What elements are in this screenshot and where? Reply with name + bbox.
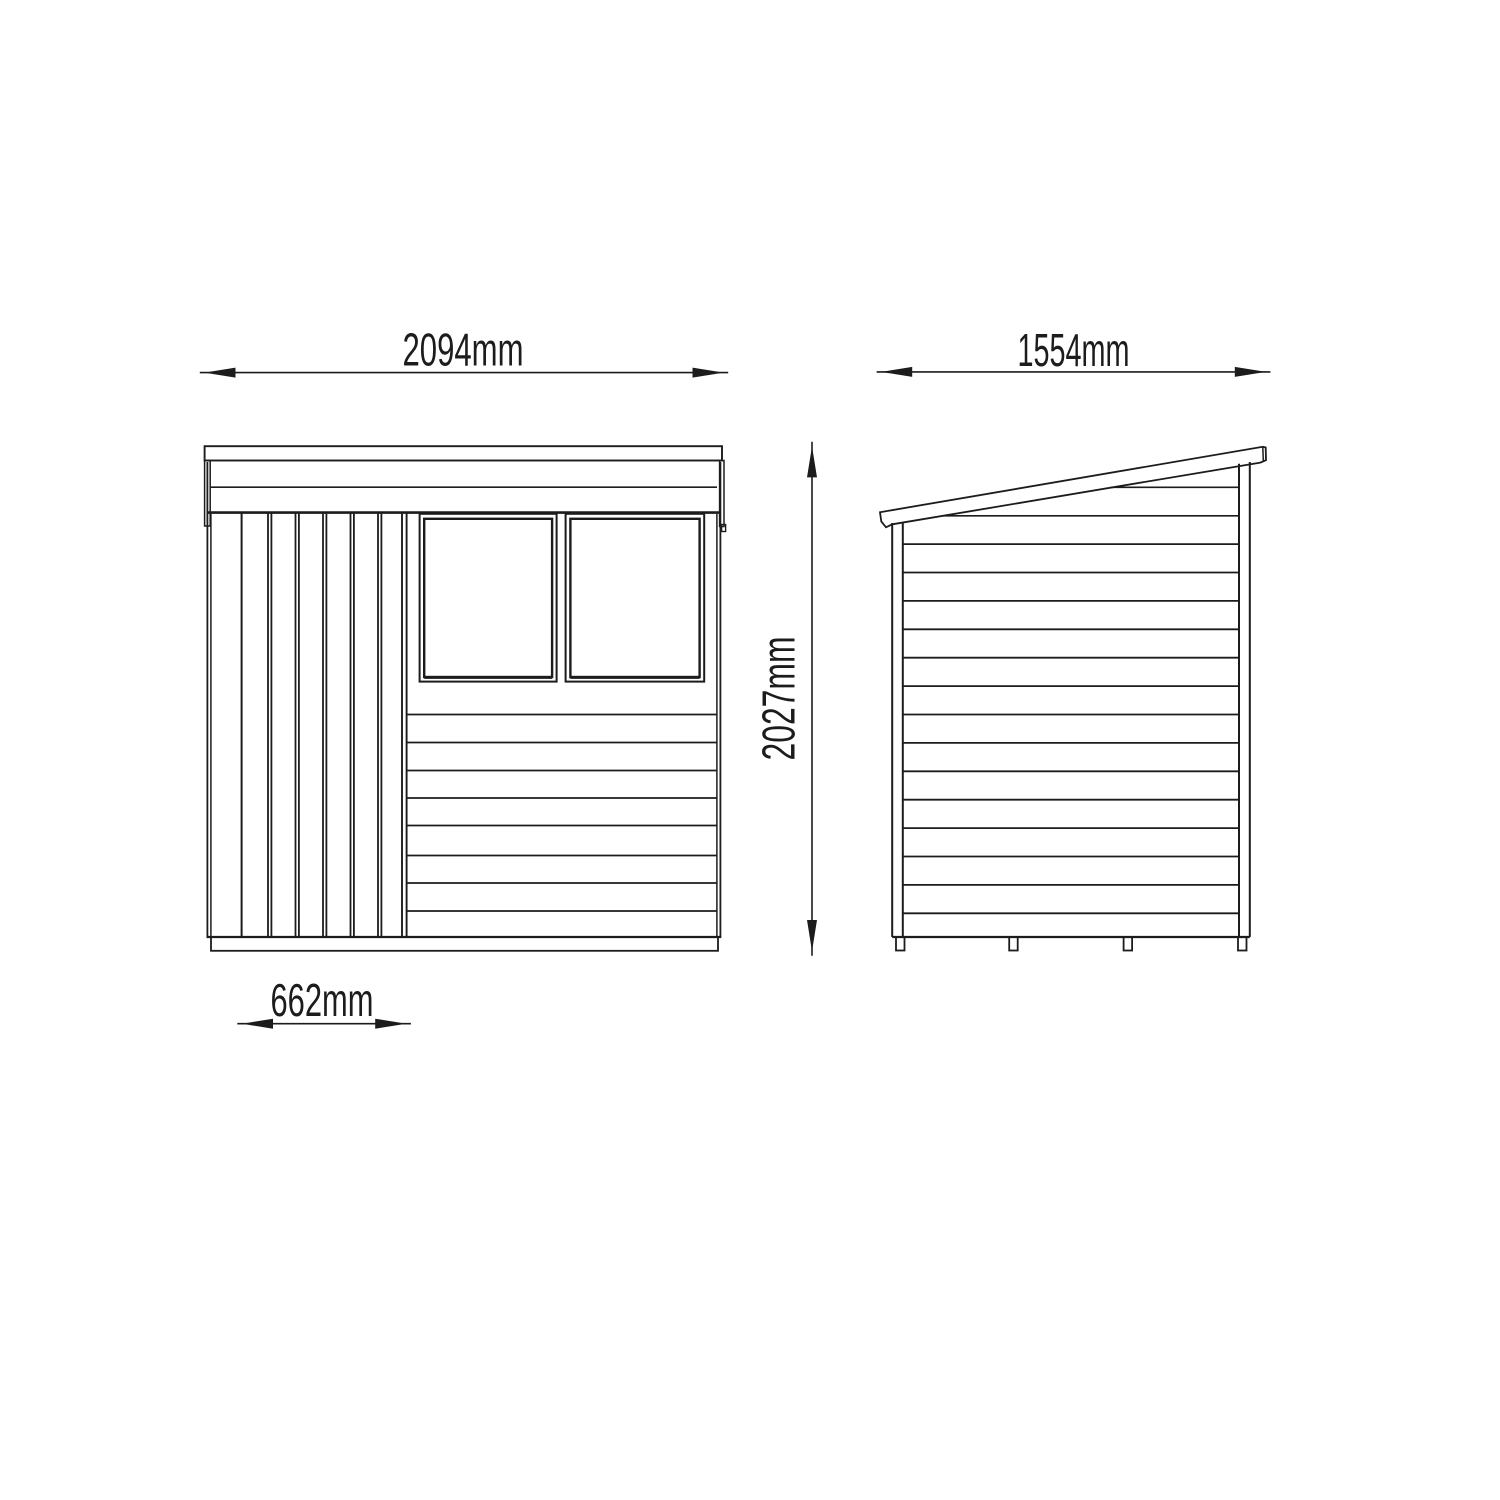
svg-text:662mm: 662mm <box>271 974 374 1026</box>
svg-text:2094mm: 2094mm <box>403 324 524 376</box>
svg-text:1554mm: 1554mm <box>1018 324 1130 376</box>
svg-text:2027mm: 2027mm <box>753 637 805 761</box>
